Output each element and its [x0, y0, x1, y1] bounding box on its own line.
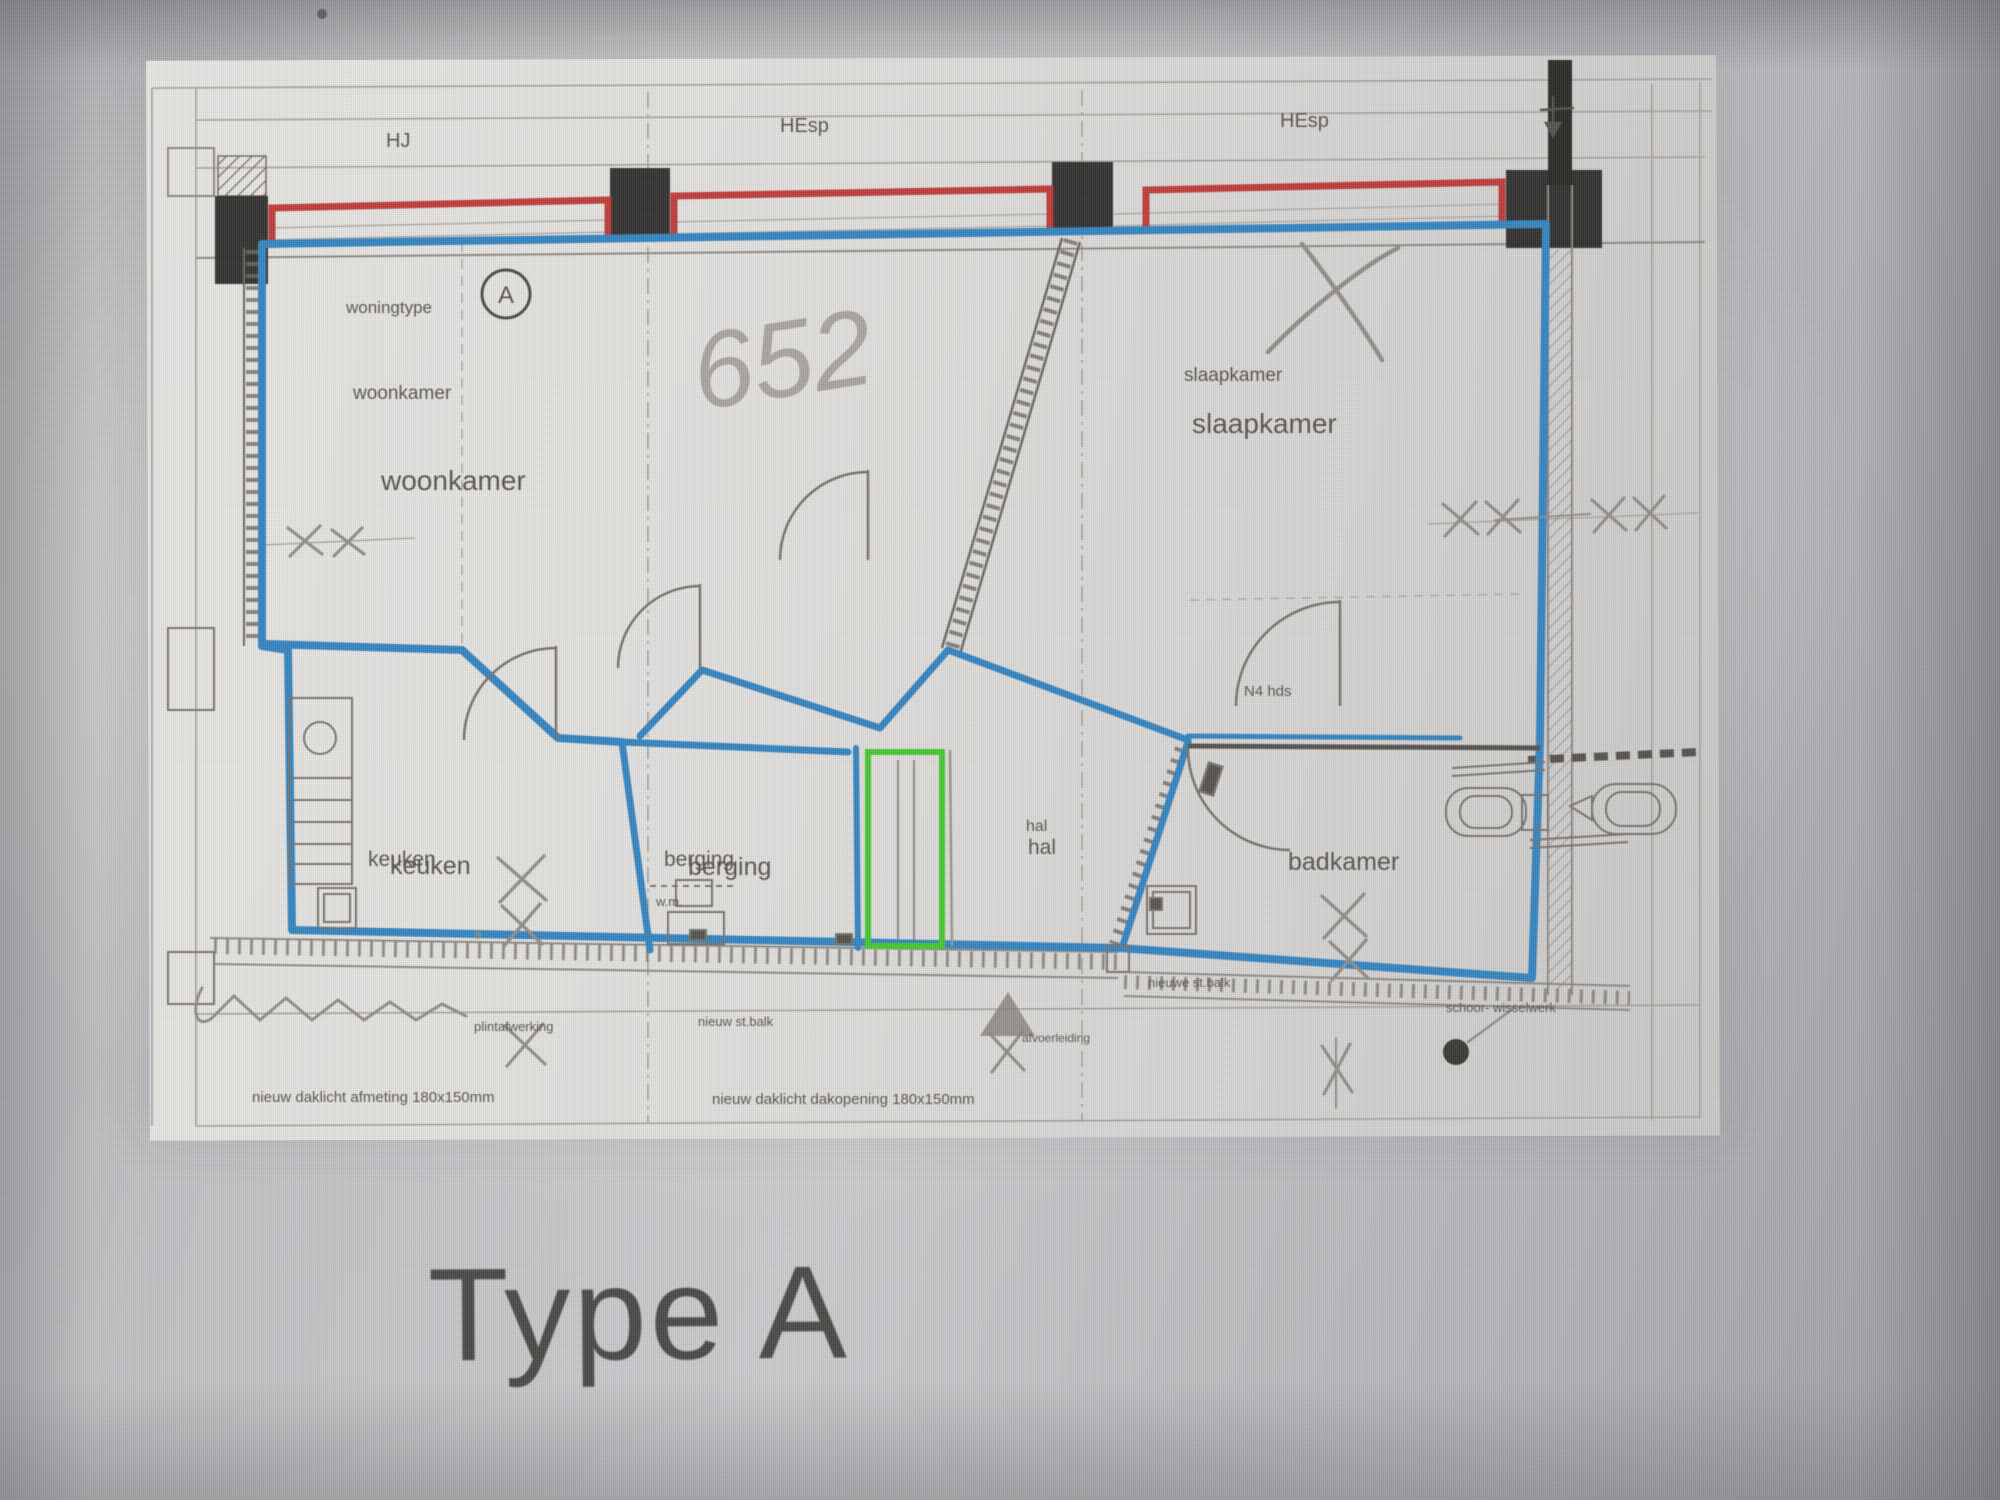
photo-speck [474, 931, 482, 939]
floorplan-drawing: HJ HEsp HEsp woningtype A woonkamer woon… [0, 0, 2000, 1500]
berging-label: berging [688, 853, 771, 881]
marker-dot [1443, 1039, 1469, 1065]
door-code-label: N4 hds [1244, 683, 1292, 700]
beam-note-mid: nieuw st.balk [698, 1014, 774, 1029]
vent-triangle [980, 992, 1035, 1036]
hal-label-small: hal [1026, 818, 1047, 835]
slaapkamer-label: slaapkamer [1192, 408, 1337, 439]
exterior-wall-band [168, 148, 1705, 284]
daklicht-note-mid: nieuw daklicht dakopening 180x150mm [712, 1091, 975, 1108]
grid-label-hesp2: HEsp [1280, 110, 1329, 132]
door-arcs [464, 470, 1340, 850]
slaapkamer-label-small: slaapkamer [1184, 365, 1283, 386]
hal-label: hal [1028, 836, 1056, 859]
woonkamer-label: woonkamer [380, 465, 526, 496]
grid-label-hesp1: HEsp [780, 115, 829, 137]
daklicht-note-left: nieuw daklicht afmeting 180x150mm [252, 1089, 495, 1106]
grid-label-hj: HJ [386, 130, 410, 152]
woningtype-code: A [498, 282, 514, 309]
pencil-annotations [196, 244, 1666, 1108]
pencil-zigzag [196, 988, 466, 1022]
note-keuken: plintafwerking [474, 1019, 554, 1034]
green-door-highlight [868, 750, 952, 946]
woonkamer-label-small: woonkamer [352, 383, 452, 404]
badkamer-label: badkamer [1288, 848, 1399, 876]
plan-notes: plintafwerking nieuw st.balk nieuwe st.b… [252, 975, 1556, 1108]
badkamer-top-wall [1188, 746, 1540, 748]
photo-of-screen: { "plan": { "grid_labels": { "hj": "HJ",… [0, 0, 2000, 1500]
photo-speck [317, 9, 327, 19]
woningtype-label: woningtype [345, 298, 432, 317]
wm-label: w.m. [655, 894, 683, 909]
plan-type-caption: Type A [427, 1237, 850, 1391]
kitchen-counter [289, 778, 352, 884]
handwritten-number: 652 [684, 285, 881, 433]
afvoer-note: afvoerleiding [1022, 1031, 1090, 1045]
schoor-note: schoor- wisselwerk [1446, 1000, 1556, 1015]
pencil-x-slaapkamer [1268, 248, 1398, 352]
beam-note-right: nieuwe st.balk [1148, 975, 1231, 990]
hatched-walls [210, 238, 1630, 1010]
keuken-label: keuken [390, 852, 471, 880]
